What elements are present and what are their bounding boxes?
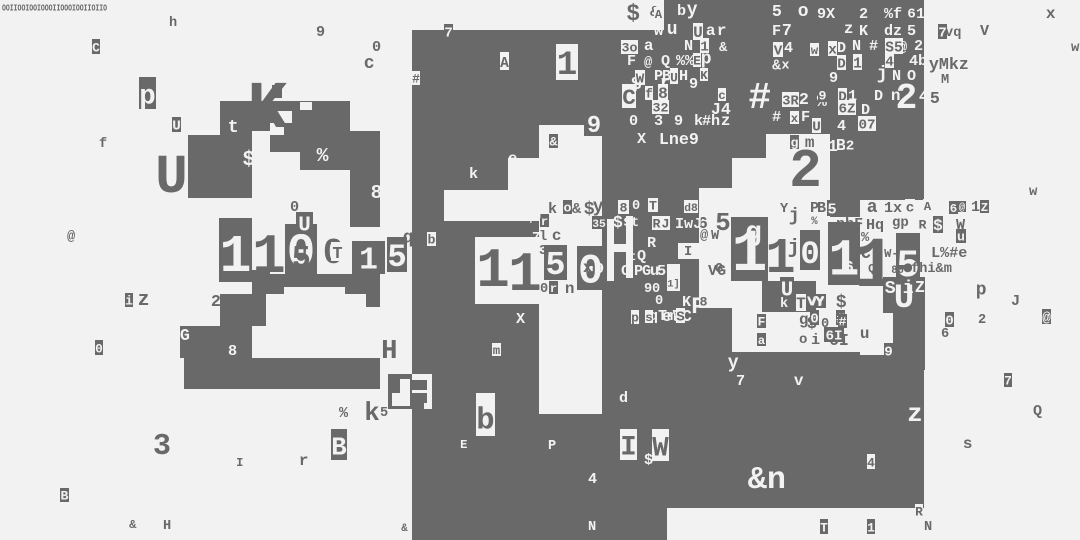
svg-text:vq: vq [945,26,961,41]
svg-text:32: 32 [653,101,669,116]
svg-text:M: M [941,73,949,88]
svg-text:0: 0 [290,198,299,216]
svg-text:3: 3 [153,430,171,464]
svg-text:%f: %f [884,5,902,23]
svg-text:pbF: pbF [836,215,863,233]
svg-text:o: o [799,332,807,348]
svg-text:a: a [867,198,878,218]
svg-text:1: 1 [252,225,286,289]
svg-text:Q: Q [868,262,875,276]
svg-text:1: 1 [853,56,862,72]
svg-text:@: @ [644,56,652,71]
svg-text:J: J [1011,292,1020,310]
svg-text:c: c [364,54,375,74]
svg-text:8: 8 [371,182,383,204]
svg-text:4: 4 [837,117,846,135]
svg-text:I: I [689,249,697,264]
svg-text:OOIIOOIOOIOOOIIOOOIOOIIOIIO: OOIIOOIOOIOOOIIOOOIOOIIOIIO [2,4,107,14]
svg-text:i: i [811,331,820,349]
svg-text:8: 8 [700,295,708,310]
svg-text:T: T [820,520,828,535]
svg-text:U: U [670,70,678,85]
svg-text:Z: Z [981,201,988,215]
svg-text:&: & [719,41,728,56]
svg-text:0: 0 [632,199,640,214]
svg-text:&n: &n [748,462,786,498]
svg-text:1: 1 [508,243,542,307]
svg-text:j: j [789,206,800,226]
svg-text:d: d [619,389,628,407]
svg-text:s: s [645,311,652,325]
svg-text:H: H [163,519,171,534]
svg-text:#: # [772,108,781,126]
svg-text:6Z: 6Z [838,101,855,117]
svg-text:x: x [1046,5,1056,23]
svg-text:U: U [155,148,188,209]
svg-text:j: j [788,237,800,260]
svg-text:5: 5 [292,241,311,277]
svg-text:l: l [539,230,547,245]
svg-text:r: r [299,452,309,470]
svg-text:@: @ [959,202,966,214]
svg-text:X: X [637,130,647,148]
svg-text:e: e [508,150,518,168]
svg-text:4: 4 [867,455,875,470]
svg-text:R: R [915,505,923,520]
svg-text:$: $ [626,1,640,27]
svg-text:5: 5 [657,262,666,280]
svg-text:x: x [791,112,799,126]
svg-text:2: 2 [211,293,221,312]
svg-text:VG: VG [708,262,726,280]
svg-text:B: B [61,489,69,504]
svg-text:C: C [92,40,100,55]
svg-text:7: 7 [444,25,453,41]
svg-text:s: s [963,435,973,453]
svg-text:c: c [552,227,562,245]
svg-text:r: r [536,204,547,224]
svg-text:80: 80 [891,265,904,277]
svg-text:%: % [317,145,329,167]
svg-text:7: 7 [736,372,745,390]
svg-text:9: 9 [644,282,652,297]
svg-text:&: & [129,518,137,532]
svg-text:9: 9 [587,113,601,140]
svg-text:b: b [476,404,494,439]
svg-text:H: H [679,67,688,85]
svg-text:1: 1 [971,198,980,216]
svg-text:0: 0 [945,313,954,329]
svg-text:&: & [572,200,582,218]
svg-text:f: f [645,87,653,102]
svg-text:K: K [247,73,287,148]
svg-text:p: p [631,311,639,326]
svg-text:6: 6 [950,202,957,216]
svg-text:D: D [837,56,846,72]
svg-text:d8: d8 [684,203,698,215]
svg-text:1: 1 [867,520,875,535]
svg-text:v: v [794,372,804,390]
svg-text:IwJ: IwJ [675,215,702,233]
svg-text:p: p [976,280,987,300]
svg-text:#: # [702,112,711,130]
svg-text:q: q [403,228,414,248]
svg-text:o: o [564,201,572,216]
svg-text:T: T [649,199,657,214]
svg-text:V: V [980,22,990,40]
svg-text:z: z [844,20,854,38]
svg-text:V: V [774,43,783,59]
svg-text:$: $ [243,148,256,172]
svg-text:z: z [721,112,731,130]
svg-text:Lne9: Lne9 [659,131,699,150]
svg-text:w: w [654,22,664,40]
svg-text:x: x [828,42,837,58]
svg-text:3o: 3o [622,41,638,56]
svg-text:E: E [693,54,701,69]
svg-text:0: 0 [629,112,638,130]
svg-text:6: 6 [907,6,916,22]
svg-text:t: t [228,118,239,138]
svg-text:R: R [647,234,657,252]
svg-text:m: m [805,134,815,152]
svg-text:H: H [434,520,442,535]
svg-text:7: 7 [938,25,947,41]
svg-text:C: C [622,85,636,111]
svg-text:k: k [364,399,379,428]
svg-text:dz: dz [884,22,902,40]
svg-text:h: h [711,112,720,130]
svg-text:9: 9 [689,75,698,93]
svg-text:E: E [460,438,467,452]
svg-text:1: 1 [916,5,925,23]
svg-text:7: 7 [532,231,540,246]
svg-text:#: # [869,37,878,55]
svg-text:I: I [620,433,636,464]
svg-text:F: F [758,315,766,330]
svg-text:0: 0 [540,282,548,297]
svg-text:T: T [796,295,806,313]
svg-text:W: W [652,434,669,465]
svg-text:U: U [172,118,181,134]
svg-text:K: K [700,69,708,83]
svg-text:4: 4 [919,88,929,107]
svg-text:S: S [676,309,685,325]
svg-text:#: # [412,72,420,87]
svg-text:Q: Q [1033,402,1042,420]
svg-text:D: D [837,39,846,57]
svg-text:g: g [791,136,799,151]
svg-text:r: r [717,22,727,40]
svg-text:2: 2 [978,313,986,328]
svg-text:9: 9 [819,89,827,104]
svg-text:n: n [565,280,575,298]
svg-text:S: S [885,279,896,299]
svg-text:gp: gp [892,215,909,231]
svg-text:9: 9 [316,23,325,41]
svg-text:%: % [861,231,870,246]
svg-text:o: o [798,2,809,22]
svg-text:i: i [903,279,914,299]
svg-text:T: T [332,245,342,264]
svg-text:W: W [636,71,645,87]
svg-text:2: 2 [846,138,855,154]
svg-text:H: H [381,336,397,367]
svg-text:$: $ [613,214,623,233]
svg-text:1]: 1] [667,278,680,290]
svg-text:1: 1 [476,239,510,303]
svg-text:J: J [662,217,670,232]
svg-text:B: B [817,199,826,217]
svg-text:4: 4 [885,54,894,70]
svg-text:C: C [621,262,630,280]
svg-text:4: 4 [588,470,597,488]
svg-text:1: 1 [557,47,578,85]
svg-text:u: u [667,20,678,40]
svg-text:Z@A: Z@A [915,279,945,298]
svg-text:u: u [957,230,965,245]
svg-text:y: y [593,197,604,217]
svg-text:i: i [125,294,133,309]
svg-text:k: k [469,165,478,183]
svg-text:U: U [298,214,311,237]
svg-text:9: 9 [674,112,683,130]
svg-text:k: k [548,200,557,218]
svg-text:fhi&m: fhi&m [911,262,952,277]
svg-text:c: c [718,89,725,103]
svg-text:N: N [852,37,861,55]
svg-text:a: a [644,37,654,55]
svg-text:9: 9 [884,344,893,360]
svg-text:G: G [180,327,190,346]
svg-text:5: 5 [546,246,566,284]
svg-text:8: 8 [228,342,237,360]
svg-text:R: R [919,218,927,233]
svg-text:X: X [516,310,526,328]
svg-text:R: R [653,217,661,232]
svg-text:2: 2 [859,5,868,23]
svg-text:z: z [907,399,923,429]
svg-text:9X: 9X [817,5,836,23]
svg-text:Y: Y [815,293,825,311]
svg-text:I: I [236,456,243,470]
svg-text:O: O [907,67,916,85]
svg-text:07: 07 [858,117,875,133]
svg-text:@: @ [1042,310,1051,326]
svg-text:u: u [860,325,870,343]
svg-text:A: A [655,8,663,22]
svg-text:c: c [906,200,915,216]
svg-text:5: 5 [380,406,388,421]
svg-text:35: 35 [592,219,606,231]
svg-text:1: 1 [220,227,252,287]
svg-text:r: r [550,282,557,296]
svg-text:b: b [428,233,436,248]
svg-text:t: t [631,216,639,231]
svg-text:&: & [401,523,408,535]
svg-text:k: k [780,297,788,312]
svg-text:y: y [728,353,739,373]
svg-text:f: f [99,137,107,152]
svg-text:5: 5 [827,200,836,218]
svg-text:%: % [811,216,818,228]
svg-text:y: y [687,0,698,20]
svg-text:5: 5 [930,90,940,109]
svg-text:a: a [758,334,766,348]
svg-text:a: a [706,22,716,40]
svg-text:0: 0 [95,341,103,356]
svg-text:w: w [811,44,819,58]
svg-text:1: 1 [700,39,709,55]
svg-text:A: A [500,56,509,72]
svg-text:N: N [588,520,596,535]
svg-text:8: 8 [620,201,628,216]
svg-text:B: B [331,434,346,463]
svg-text:0: 0 [800,236,819,273]
svg-text:&: & [772,58,781,74]
svg-text:b: b [677,2,686,20]
svg-text:P: P [548,439,556,454]
svg-text:3: 3 [539,244,547,259]
svg-text:m: m [493,344,500,358]
svg-text:F: F [801,108,810,126]
svg-text:g: g [745,218,762,249]
svg-text:N: N [924,520,932,535]
svg-text:D: D [874,87,883,105]
svg-text:w: w [1071,40,1080,56]
svg-text:F: F [772,22,781,40]
svg-text:#: # [748,77,771,120]
svg-text:B: B [836,137,846,156]
svg-text:W-: W- [884,247,899,261]
svg-text:9: 9 [595,260,604,278]
svg-text:$: $ [933,217,943,235]
svg-text:0: 0 [810,311,819,327]
svg-text:5: 5 [772,3,782,22]
svg-text:6: 6 [844,259,854,278]
svg-text:#: # [839,315,847,330]
svg-text:4: 4 [784,39,793,57]
svg-text:W: W [711,229,720,244]
svg-text:w: w [1029,184,1038,200]
svg-text:L%#e: L%#e [931,244,967,262]
svg-text:h: h [169,16,177,31]
svg-text:1: 1 [359,243,378,278]
svg-text:x: x [583,259,593,277]
svg-text:x: x [782,58,790,73]
svg-text:A: A [924,200,932,214]
svg-text:3R: 3R [782,94,799,109]
svg-text:7: 7 [1004,374,1012,389]
svg-text:@: @ [67,230,75,245]
svg-text:6I: 6I [825,328,842,344]
svg-text:z: z [138,289,150,312]
svg-text:p: p [139,82,155,113]
svg-text:&: & [550,135,558,150]
svg-text:Y: Y [780,202,789,217]
svg-text:%: % [339,404,349,422]
svg-text:U: U [812,119,821,135]
